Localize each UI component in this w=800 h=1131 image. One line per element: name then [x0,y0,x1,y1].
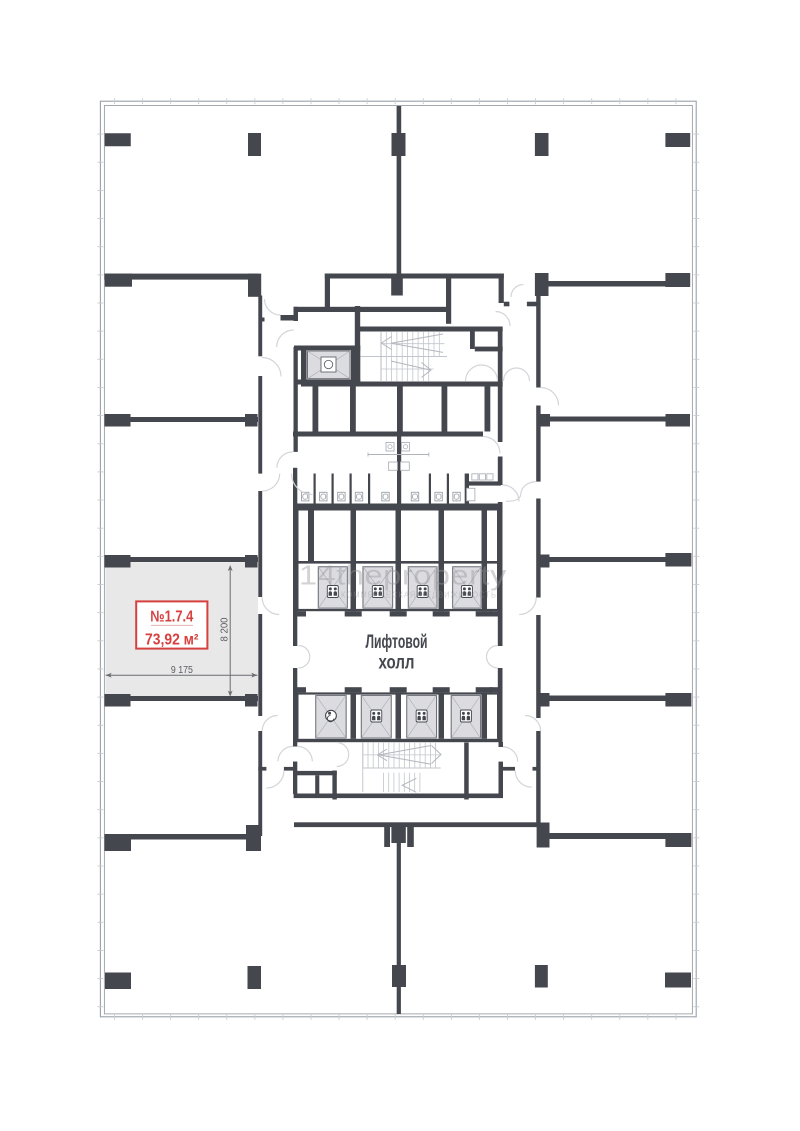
svg-text:КОММЕРЧЕСКАЯ НЕДВИЖИМОСТЬ: КОММЕРЧЕСКАЯ НЕДВИЖИМОСТЬ [341,590,497,600]
svg-text:8 200: 8 200 [220,617,231,642]
svg-text:14theproperty: 14theproperty [299,560,507,591]
svg-text:73,92 м²: 73,92 м² [145,632,199,649]
svg-text:№1.7.4: №1.7.4 [150,609,193,626]
svg-text:Лифтовой: Лифтовой [366,631,428,653]
svg-text:9 175: 9 175 [171,665,193,676]
svg-text:холл: холл [379,652,415,674]
